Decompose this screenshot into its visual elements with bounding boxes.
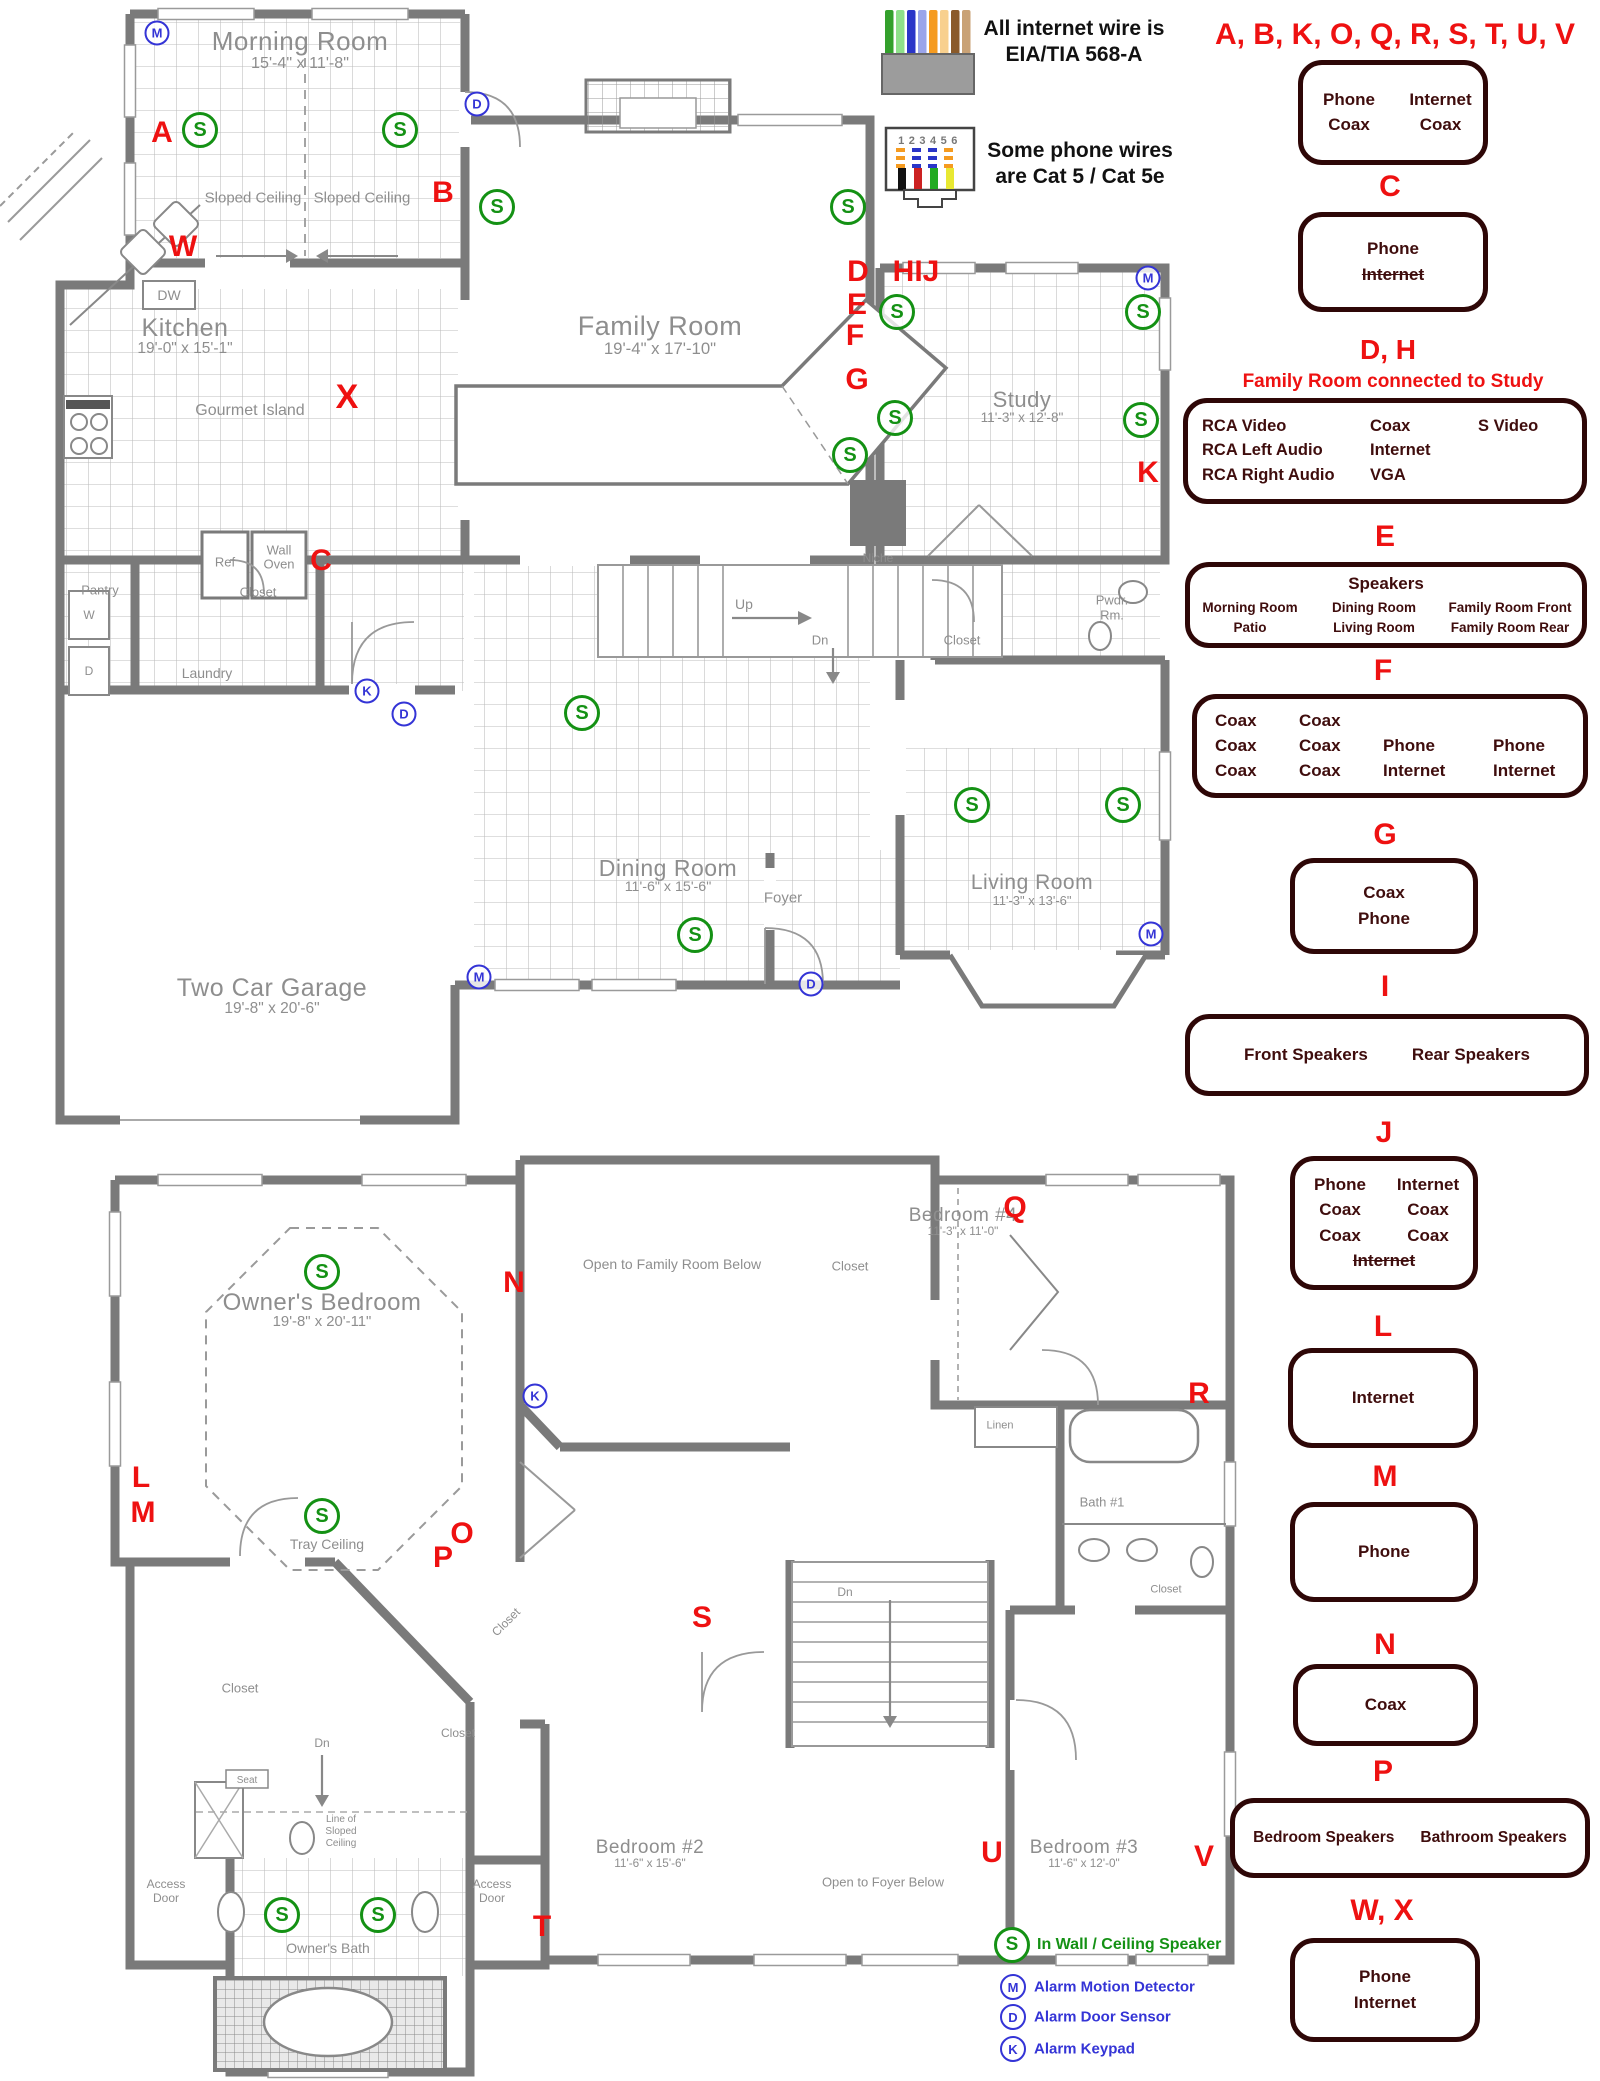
floor2-outlet-letter-n: N bbox=[503, 1268, 525, 1298]
legend-box-text: RCA Left Audio bbox=[1202, 440, 1370, 461]
room-name: Study bbox=[981, 388, 1064, 411]
floor2-label-line-of: Line of bbox=[326, 1815, 356, 1825]
legend-box-row: Internet bbox=[1353, 1250, 1415, 1272]
legend-box-DH: RCA VideoCoaxS VideoRCA Left AudioIntern… bbox=[1183, 398, 1587, 504]
legend-box-text: RCA Video bbox=[1202, 416, 1370, 437]
room-name: Bedroom #3 bbox=[1030, 1838, 1139, 1858]
legend-box-text: Phone bbox=[1358, 1541, 1410, 1563]
floor1-label-d: D bbox=[85, 665, 94, 677]
floor2-label-closet: Closet bbox=[1150, 1585, 1181, 1596]
floor1-room-label-dining-room: Dining Room11'-6" x 15'-6" bbox=[599, 856, 737, 895]
floor1-label-laundry: Laundry bbox=[182, 666, 233, 680]
legend-box-L: Internet bbox=[1288, 1348, 1478, 1448]
room-dimensions: 19'-0" x 15'-1" bbox=[137, 341, 232, 357]
legend-box-row: PatioLiving RoomFamily Room Rear bbox=[1185, 619, 1587, 637]
legend-box-text: Phone bbox=[1296, 1174, 1384, 1196]
floor2-outlet-letter-q: Q bbox=[1003, 1193, 1026, 1223]
floor2-room-label-bedroom-4: Bedroom #411'-3" x 11'-0" bbox=[909, 1206, 1018, 1238]
floor1-speaker-marker: S bbox=[954, 787, 990, 823]
legend-box-text: Bedroom Speakers bbox=[1253, 1828, 1394, 1848]
floor2-outlet-letter-o: O bbox=[450, 1519, 473, 1549]
floor1-speaker-marker: S bbox=[677, 917, 713, 953]
legend-box-row: Internet bbox=[1352, 1387, 1414, 1409]
legend-box-text: Internet bbox=[1384, 1174, 1472, 1196]
floor2-label-linen: Linen bbox=[987, 1421, 1014, 1432]
legend-box-text: Rear Speakers bbox=[1412, 1044, 1530, 1066]
floor1-label-closet: Closet bbox=[240, 586, 277, 599]
legend-box-text: Coax bbox=[1302, 114, 1397, 136]
floor1-label-closet: Closet bbox=[944, 634, 981, 647]
legend-box-text: Coax bbox=[1296, 1225, 1384, 1247]
floor2-speaker-marker: S bbox=[304, 1498, 340, 1534]
floor2-speaker-marker: S bbox=[360, 1897, 396, 1933]
legend-box-text: Patio bbox=[1185, 619, 1315, 637]
legend-box-row: Internet bbox=[1354, 1992, 1416, 2014]
symbol-legend-d-icon: D bbox=[1000, 2004, 1026, 2030]
floor1-label-ref: Ref bbox=[215, 556, 235, 569]
floor2-room-label-owner-s-bedroom: Owner's Bedroom19'-8" x 20'-11" bbox=[223, 1290, 422, 1331]
legend-box-text: Living Room bbox=[1315, 619, 1433, 637]
legend-box-text: Internet bbox=[1397, 89, 1485, 111]
legend-box-text: Coax bbox=[1397, 114, 1485, 136]
legend-box-text bbox=[1383, 710, 1493, 732]
legend-box-text: Coax bbox=[1299, 735, 1383, 757]
legend-box-N: Coax bbox=[1293, 1664, 1478, 1746]
legend-box-G: CoaxPhone bbox=[1290, 858, 1478, 954]
room-dimensions: 11'-3" x 12'-8" bbox=[981, 411, 1064, 425]
floor1-room-label-living-room: Living Room11'-3" x 13'-6" bbox=[971, 872, 1093, 908]
phone-wire-note-line1: Some phone wires bbox=[987, 139, 1173, 162]
legend-box-text: VGA bbox=[1370, 465, 1478, 486]
legend-letters-F: F bbox=[1374, 656, 1392, 686]
floor1-outlet-letter-d: D bbox=[847, 257, 869, 287]
legend-letters-DH: D, H bbox=[1360, 336, 1416, 364]
legend-box-text: Phone bbox=[1493, 735, 1600, 757]
legend-box-row: RCA VideoCoaxS Video bbox=[1188, 416, 1568, 437]
floor2-label-ceiling: Ceiling bbox=[326, 1839, 357, 1849]
legend-box-row: CoaxCoaxInternetInternet bbox=[1197, 760, 1600, 782]
floor1-room-label-two-car-garage: Two Car Garage19'-8" x 20'-6" bbox=[177, 975, 367, 1018]
legend-box-row: Front SpeakersRear Speakers bbox=[1244, 1044, 1530, 1066]
floor2-label-access: Access bbox=[147, 1878, 186, 1890]
legend-letters-N: N bbox=[1374, 1630, 1396, 1660]
legend-box-text: Internet bbox=[1353, 1250, 1415, 1272]
floor1-outlet-letter-hij: HIJ bbox=[893, 257, 940, 287]
legend-box-I: Front SpeakersRear Speakers bbox=[1185, 1014, 1589, 1096]
legend-box-text: Phone bbox=[1359, 1966, 1411, 1988]
legend-letters-WX: W, X bbox=[1350, 1896, 1413, 1926]
legend-box-row: Phone bbox=[1358, 908, 1410, 930]
room-dimensions: 19'-8" x 20'-11" bbox=[223, 1315, 422, 1331]
room-name: Kitchen bbox=[137, 315, 232, 341]
floor2-label-open-to-foyer-below: Open to Foyer Below bbox=[822, 1876, 944, 1889]
room-name: Owner's Bedroom bbox=[223, 1290, 422, 1315]
room-name: Bedroom #4 bbox=[909, 1206, 1018, 1226]
floor1-alarm-motion-detector-marker: M bbox=[145, 21, 170, 46]
floor2-outlet-letter-t: T bbox=[533, 1912, 551, 1942]
floor2-label-closet: Closet bbox=[441, 1727, 475, 1739]
legend-letters-L: L bbox=[1374, 1312, 1392, 1342]
floor1-speaker-marker: S bbox=[1123, 402, 1159, 438]
symbol-legend-label: Alarm Motion Detector bbox=[1034, 1979, 1195, 1996]
legend-box-text: Coax bbox=[1215, 710, 1299, 732]
floor1-speaker-marker: S bbox=[877, 400, 913, 436]
floor2-label-seat: Seat bbox=[237, 1776, 258, 1786]
legend-box-text: Coax bbox=[1370, 416, 1478, 437]
room-name: Bedroom #2 bbox=[596, 1838, 705, 1858]
floor2-label-sloped: Sloped bbox=[325, 1827, 356, 1837]
floor1-alarm-door-sensor-marker: D bbox=[799, 972, 824, 997]
symbol-legend-label: Alarm Door Sensor bbox=[1034, 2009, 1171, 2026]
legend-box-text: Phone bbox=[1358, 908, 1410, 930]
floor1-label-foyer: Foyer bbox=[764, 891, 802, 906]
legend-box-text: Coax bbox=[1215, 760, 1299, 782]
floor2-dn-arrow bbox=[315, 1755, 329, 1807]
connector-pin-numbers: 123456 bbox=[898, 135, 962, 147]
floor1-speaker-marker: S bbox=[479, 189, 515, 225]
room-name: Two Car Garage bbox=[177, 975, 367, 1001]
legend-box-text: Phone bbox=[1383, 735, 1493, 757]
floor1-outlet-letter-a: A bbox=[151, 118, 173, 148]
room-dimensions: 11'-6" x 12'-0" bbox=[1030, 1858, 1139, 1870]
floor2-speaker-marker: S bbox=[264, 1897, 300, 1933]
legend-box-text: Internet bbox=[1354, 1992, 1416, 2014]
legend-box-text: Coax bbox=[1296, 1199, 1384, 1221]
floor1-speaker-marker: S bbox=[1105, 787, 1141, 823]
floor1-speaker-marker: S bbox=[564, 695, 600, 731]
legend-box-row: Bedroom SpeakersBathroom Speakers bbox=[1253, 1828, 1567, 1848]
legend-box-row: Coax bbox=[1365, 1694, 1407, 1716]
legend-box-text: Coax bbox=[1299, 760, 1383, 782]
internet-wire-note-line1: All internet wire is bbox=[984, 17, 1165, 40]
floor1-label-gourmet-island: Gourmet Island bbox=[195, 403, 304, 419]
legend-box-row: CoaxCoax bbox=[1302, 114, 1485, 136]
niche-block bbox=[850, 480, 906, 546]
floor2-label-bath-1: Bath #1 bbox=[1080, 1496, 1125, 1509]
symbol-legend-label: In Wall / Ceiling Speaker bbox=[1037, 1936, 1221, 1954]
legend-letters-P: P bbox=[1373, 1757, 1393, 1787]
legend-box-row: CoaxCoax bbox=[1197, 710, 1600, 732]
floor2-outlet-letter-l: L bbox=[132, 1463, 150, 1493]
floor1-alarm-motion-detector-marker: M bbox=[467, 965, 492, 990]
legend-box-title-E: Speakers bbox=[1348, 573, 1424, 595]
floor1-alarm-motion-detector-marker: M bbox=[1136, 266, 1161, 291]
floor1-outlet-letter-f: F bbox=[846, 321, 864, 351]
floor2-outlet-letter-r: R bbox=[1188, 1379, 1210, 1409]
floor1-label-niche: Niche bbox=[863, 552, 894, 564]
floor1-speaker-marker: S bbox=[879, 294, 915, 330]
floor1-label-oven: Oven bbox=[263, 558, 294, 571]
floor2-outlet-letter-v: V bbox=[1194, 1842, 1214, 1872]
floor1-alarm-motion-detector-marker: M bbox=[1139, 922, 1164, 947]
floor1-room-label-morning-room: Morning Room15'-4" x 11'-8" bbox=[212, 28, 389, 72]
room-dimensions: 11'-3" x 11'-0" bbox=[909, 1226, 1018, 1238]
legend-letters-ABKOQRSTUV: A, B, K, O, Q, R, S, T, U, V bbox=[1215, 20, 1575, 50]
legend-box-F: CoaxCoaxCoaxCoaxPhonePhoneCoaxCoaxIntern… bbox=[1192, 694, 1588, 798]
floor1-outlet-letter-k: K bbox=[1137, 458, 1159, 488]
floor1-outlet-letter-b: B bbox=[432, 178, 454, 208]
floor1-alarm-keypad-marker: K bbox=[355, 679, 380, 704]
floor1-label-sloped-ceiling: Sloped Ceiling bbox=[205, 191, 302, 206]
floor2-label-closet: Closet bbox=[832, 1260, 869, 1273]
legend-box-WX: PhoneInternet bbox=[1290, 1938, 1480, 2042]
floor1-speaker-marker: S bbox=[832, 437, 868, 473]
floor2-speaker-marker: S bbox=[304, 1254, 340, 1290]
phone-wire-note: Some phone wires are Cat 5 / Cat 5e bbox=[972, 138, 1188, 189]
legend-box-row: PhoneInternet bbox=[1296, 1174, 1472, 1196]
phone-wire-note-line2: are Cat 5 / Cat 5e bbox=[995, 165, 1164, 188]
floor1-label-w: W bbox=[83, 609, 94, 621]
legend-box-row: RCA Right AudioVGA bbox=[1188, 465, 1568, 486]
legend-box-text: Internet bbox=[1493, 760, 1600, 782]
floor2-stairs bbox=[792, 1562, 988, 1746]
rj45-internet-connector-icon bbox=[882, 10, 974, 94]
legend-box-J: PhoneInternetCoaxCoaxCoaxCoaxInternet bbox=[1290, 1156, 1478, 1290]
legend-box-text: Internet bbox=[1352, 1387, 1414, 1409]
legend-box-text: Coax bbox=[1365, 1694, 1407, 1716]
legend-box-text: Dining Room bbox=[1315, 599, 1433, 617]
legend-letters-G: G bbox=[1373, 820, 1396, 850]
room-dimensions: 19'-8" x 20'-6" bbox=[177, 1001, 367, 1017]
legend-box-row: Morning RoomDining RoomFamily Room Front bbox=[1185, 599, 1587, 617]
legend-box-text bbox=[1493, 710, 1600, 732]
wiring-floor-plan-page: 123456 All internet wire is EIA/TIA 568-… bbox=[0, 0, 1600, 2081]
legend-box-M: Phone bbox=[1290, 1502, 1478, 1602]
legend-letters-I: I bbox=[1381, 972, 1389, 1002]
legend-letters-J: J bbox=[1376, 1118, 1393, 1148]
legend-box-text: RCA Right Audio bbox=[1202, 465, 1370, 486]
legend-box-text: Family Room Rear bbox=[1433, 619, 1587, 637]
internet-wire-note: All internet wire is EIA/TIA 568-A bbox=[968, 16, 1180, 67]
legend-box-row: Coax bbox=[1363, 882, 1405, 904]
floor2-label-door: Door bbox=[479, 1892, 505, 1904]
floor1-room-label-kitchen: Kitchen19'-0" x 15'-1" bbox=[137, 315, 232, 358]
legend-box-row: CoaxCoax bbox=[1296, 1199, 1472, 1221]
floor2-outlet-letter-s: S bbox=[692, 1603, 712, 1633]
legend-box-text: Coax bbox=[1299, 710, 1383, 732]
room-dimensions: 19'-4" x 17'-10" bbox=[578, 340, 743, 358]
legend-box-row: RCA Left AudioInternet bbox=[1188, 440, 1568, 461]
legend-box-text: Bathroom Speakers bbox=[1420, 1828, 1566, 1848]
legend-box-text: Phone bbox=[1302, 89, 1397, 111]
legend-box-text: Phone bbox=[1367, 238, 1419, 260]
floor1-label-dw: DW bbox=[157, 288, 180, 302]
room-dimensions: 11'-6" x 15'-6" bbox=[599, 880, 737, 895]
legend-subtitle-DH: Family Room connected to Study bbox=[1243, 372, 1544, 391]
floor1-label-rm-: Rm. bbox=[1100, 609, 1124, 622]
floor2-room-label-bedroom-3: Bedroom #311'-6" x 12'-0" bbox=[1030, 1838, 1139, 1870]
legend-box-text: Family Room Front bbox=[1433, 599, 1587, 617]
bath1-fixtures bbox=[1062, 1410, 1226, 1577]
legend-box-row: Phone bbox=[1367, 238, 1419, 260]
floor1-label-dn: Dn bbox=[812, 634, 829, 647]
bay-window bbox=[950, 955, 1146, 1006]
room-dimensions: 11'-3" x 13'-6" bbox=[971, 894, 1093, 908]
symbol-legend-k-icon: K bbox=[1000, 2036, 1026, 2062]
floor2-outlet-letter-m: M bbox=[131, 1498, 156, 1528]
legend-box-text: S Video bbox=[1478, 416, 1568, 437]
floor1-label-pwdr-: Pwdr. bbox=[1096, 594, 1129, 607]
floor1-outlet-letter-e: E bbox=[847, 290, 867, 320]
floor1-outlet-letter-w: W bbox=[169, 232, 197, 262]
floor2-label-access: Access bbox=[473, 1878, 512, 1890]
room-name: Living Room bbox=[971, 872, 1093, 894]
legend-box-text: Coax bbox=[1384, 1199, 1472, 1221]
floor2-alarm-keypad-marker: K bbox=[523, 1384, 548, 1409]
legend-box-P: Bedroom SpeakersBathroom Speakers bbox=[1230, 1798, 1590, 1878]
floor2-openings bbox=[230, 1300, 1135, 1770]
floor2-outlet-letter-p: P bbox=[433, 1543, 453, 1573]
floor1-speaker-marker: S bbox=[382, 112, 418, 148]
floor1-speaker-marker: S bbox=[182, 112, 218, 148]
floor2-label-dn: Dn bbox=[837, 1586, 852, 1598]
floor2-room-label-bedroom-2: Bedroom #211'-6" x 15'-6" bbox=[596, 1838, 705, 1870]
legend-box-text: Coax bbox=[1363, 882, 1405, 904]
floor1-speaker-marker: S bbox=[830, 189, 866, 225]
legend-letters-M: M bbox=[1373, 1462, 1398, 1492]
room-dimensions: 11'-6" x 15'-6" bbox=[596, 1858, 705, 1870]
fireplace bbox=[586, 80, 730, 132]
legend-box-row: Phone bbox=[1359, 1966, 1411, 1988]
legend-box-text: Internet bbox=[1370, 440, 1478, 461]
room-name: Morning Room bbox=[212, 28, 389, 55]
legend-box-row: CoaxCoax bbox=[1296, 1225, 1472, 1247]
floor1-speaker-marker: S bbox=[1125, 294, 1161, 330]
floor1-outlet-letter-c: C bbox=[310, 546, 332, 576]
floor1-alarm-door-sensor-marker: D bbox=[392, 702, 417, 727]
symbol-legend-m-icon: M bbox=[1000, 1974, 1026, 2000]
rj11-phone-connector-icon: 123456 bbox=[886, 128, 974, 207]
room-name: Family Room bbox=[578, 312, 743, 340]
legend-box-text: Morning Room bbox=[1185, 599, 1315, 617]
floor2-label-closet: Closet bbox=[222, 1682, 259, 1695]
legend-box-text: Coax bbox=[1384, 1225, 1472, 1247]
floor1-room-label-study: Study11'-3" x 12'-8" bbox=[981, 388, 1064, 425]
floor2-label-owner-s-bath: Owner's Bath bbox=[286, 1941, 370, 1955]
floor1-outlet-letter-x: X bbox=[336, 380, 359, 414]
legend-box-text bbox=[1478, 440, 1568, 461]
legend-box-row: PhoneInternet bbox=[1302, 89, 1485, 111]
symbol-legend-s-icon: S bbox=[994, 1927, 1030, 1963]
floor1-outlet-letter-g: G bbox=[845, 365, 868, 395]
floor2-label-open-to-family-room-below: Open to Family Room Below bbox=[583, 1257, 761, 1271]
legend-box-text: Front Speakers bbox=[1244, 1044, 1368, 1066]
legend-box-row: Internet bbox=[1362, 264, 1424, 286]
internet-wire-note-line2: EIA/TIA 568-A bbox=[1006, 43, 1143, 66]
legend-letters-E: E bbox=[1375, 522, 1395, 552]
room-name: Dining Room bbox=[599, 856, 737, 880]
floor1-label-sloped-ceiling: Sloped Ceiling bbox=[314, 191, 411, 206]
legend-box-ABKOQRSTUV: PhoneInternetCoaxCoax bbox=[1298, 60, 1488, 165]
symbol-legend-label: Alarm Keypad bbox=[1034, 2041, 1135, 2058]
legend-box-E: SpeakersMorning RoomDining RoomFamily Ro… bbox=[1185, 562, 1587, 648]
deck-steps bbox=[0, 130, 102, 240]
legend-box-row: CoaxCoaxPhonePhone bbox=[1197, 735, 1600, 757]
legend-box-text: Coax bbox=[1215, 735, 1299, 757]
floor1-alarm-door-sensor-marker: D bbox=[465, 92, 490, 117]
legend-box-text: Internet bbox=[1362, 264, 1424, 286]
floor2-label-dn: Dn bbox=[314, 1737, 329, 1749]
floor2-label-tray-ceiling: Tray Ceiling bbox=[290, 1537, 364, 1551]
legend-box-row: Phone bbox=[1358, 1541, 1410, 1563]
legend-box-text: Internet bbox=[1383, 760, 1493, 782]
floor1-label-wall: Wall bbox=[267, 544, 292, 557]
floor1-label-up: Up bbox=[735, 597, 753, 611]
floor2-outlet-letter-u: U bbox=[981, 1838, 1003, 1868]
floor2-label-door: Door bbox=[153, 1892, 179, 1904]
floor1-label-pantry: Pantry bbox=[81, 584, 119, 597]
cooktop bbox=[64, 396, 112, 458]
room-dimensions: 15'-4" x 11'-8" bbox=[212, 55, 389, 72]
floor1-room-label-family-room: Family Room19'-4" x 17'-10" bbox=[578, 312, 743, 358]
legend-letters-C: C bbox=[1379, 172, 1401, 202]
legend-box-text bbox=[1478, 465, 1568, 486]
legend-box-C: PhoneInternet bbox=[1298, 212, 1488, 312]
